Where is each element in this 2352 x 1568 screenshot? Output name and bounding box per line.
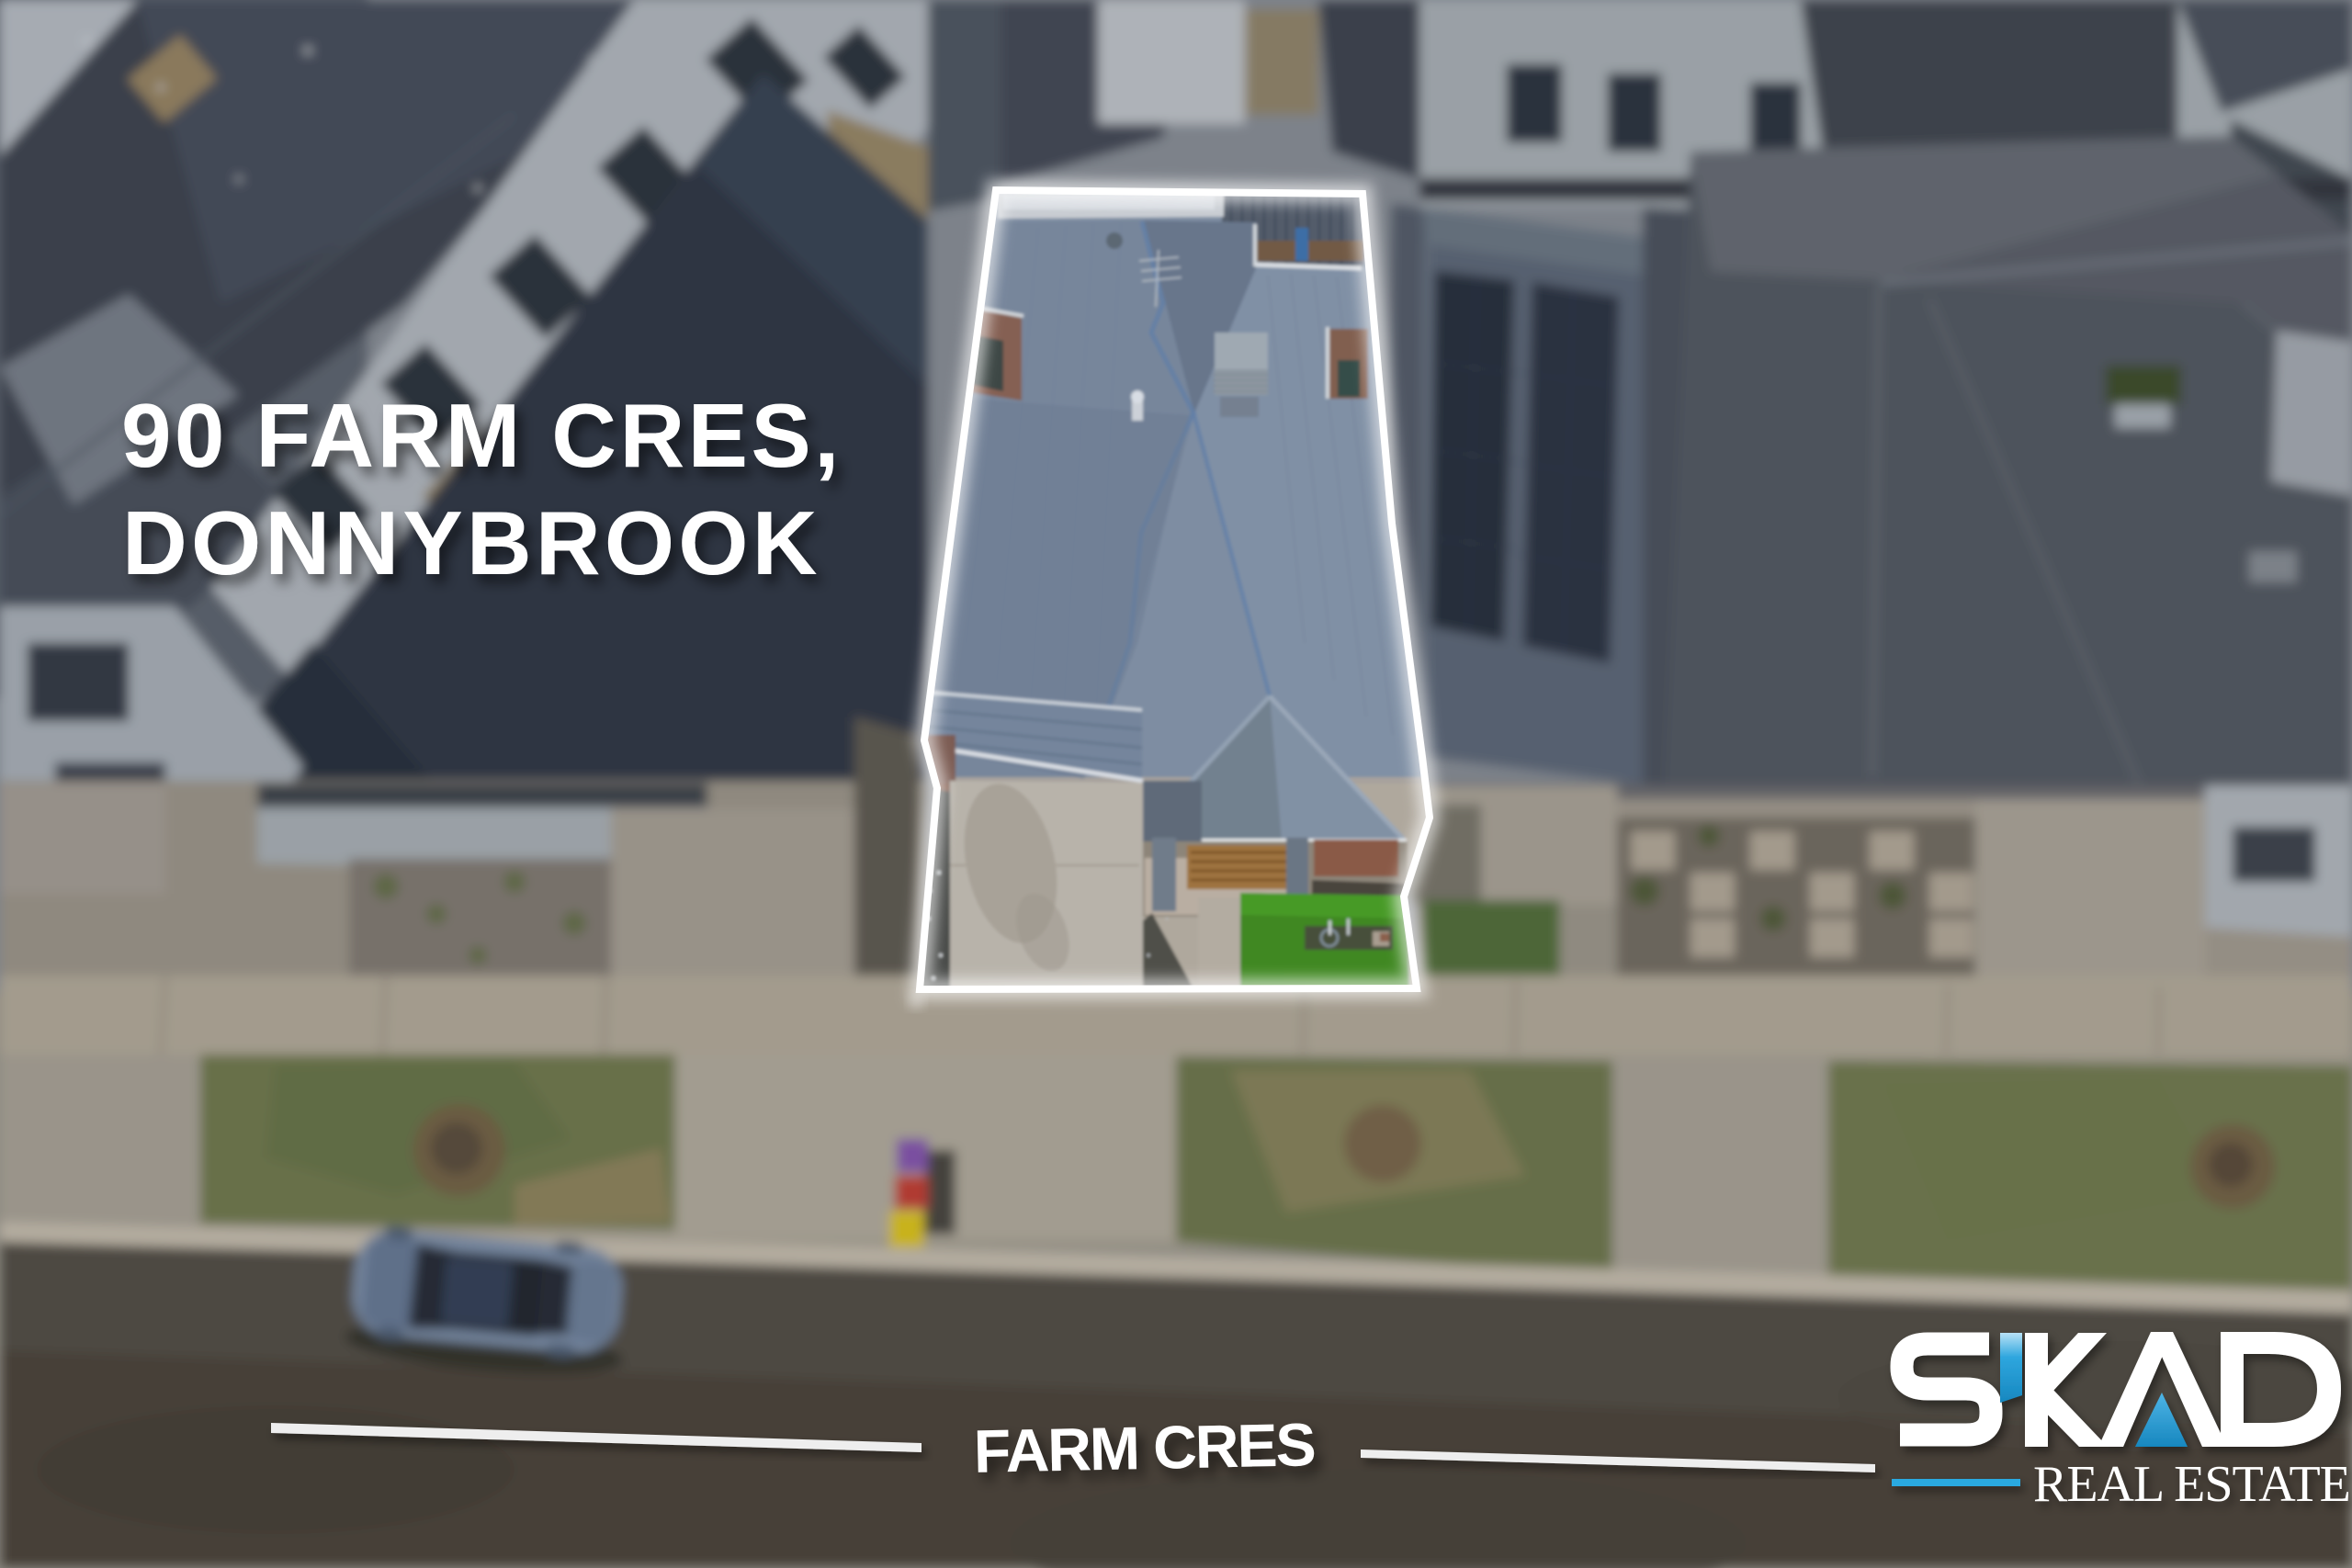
svg-text:DONNYBROOK: DONNYBROOK [122,492,821,593]
svg-text:90 FARM CRES,: 90 FARM CRES, [121,385,842,486]
svg-text:FARM CRES: FARM CRES [973,1410,1315,1485]
svg-text:REAL ESTATE: REAL ESTATE [2033,1456,2350,1513]
